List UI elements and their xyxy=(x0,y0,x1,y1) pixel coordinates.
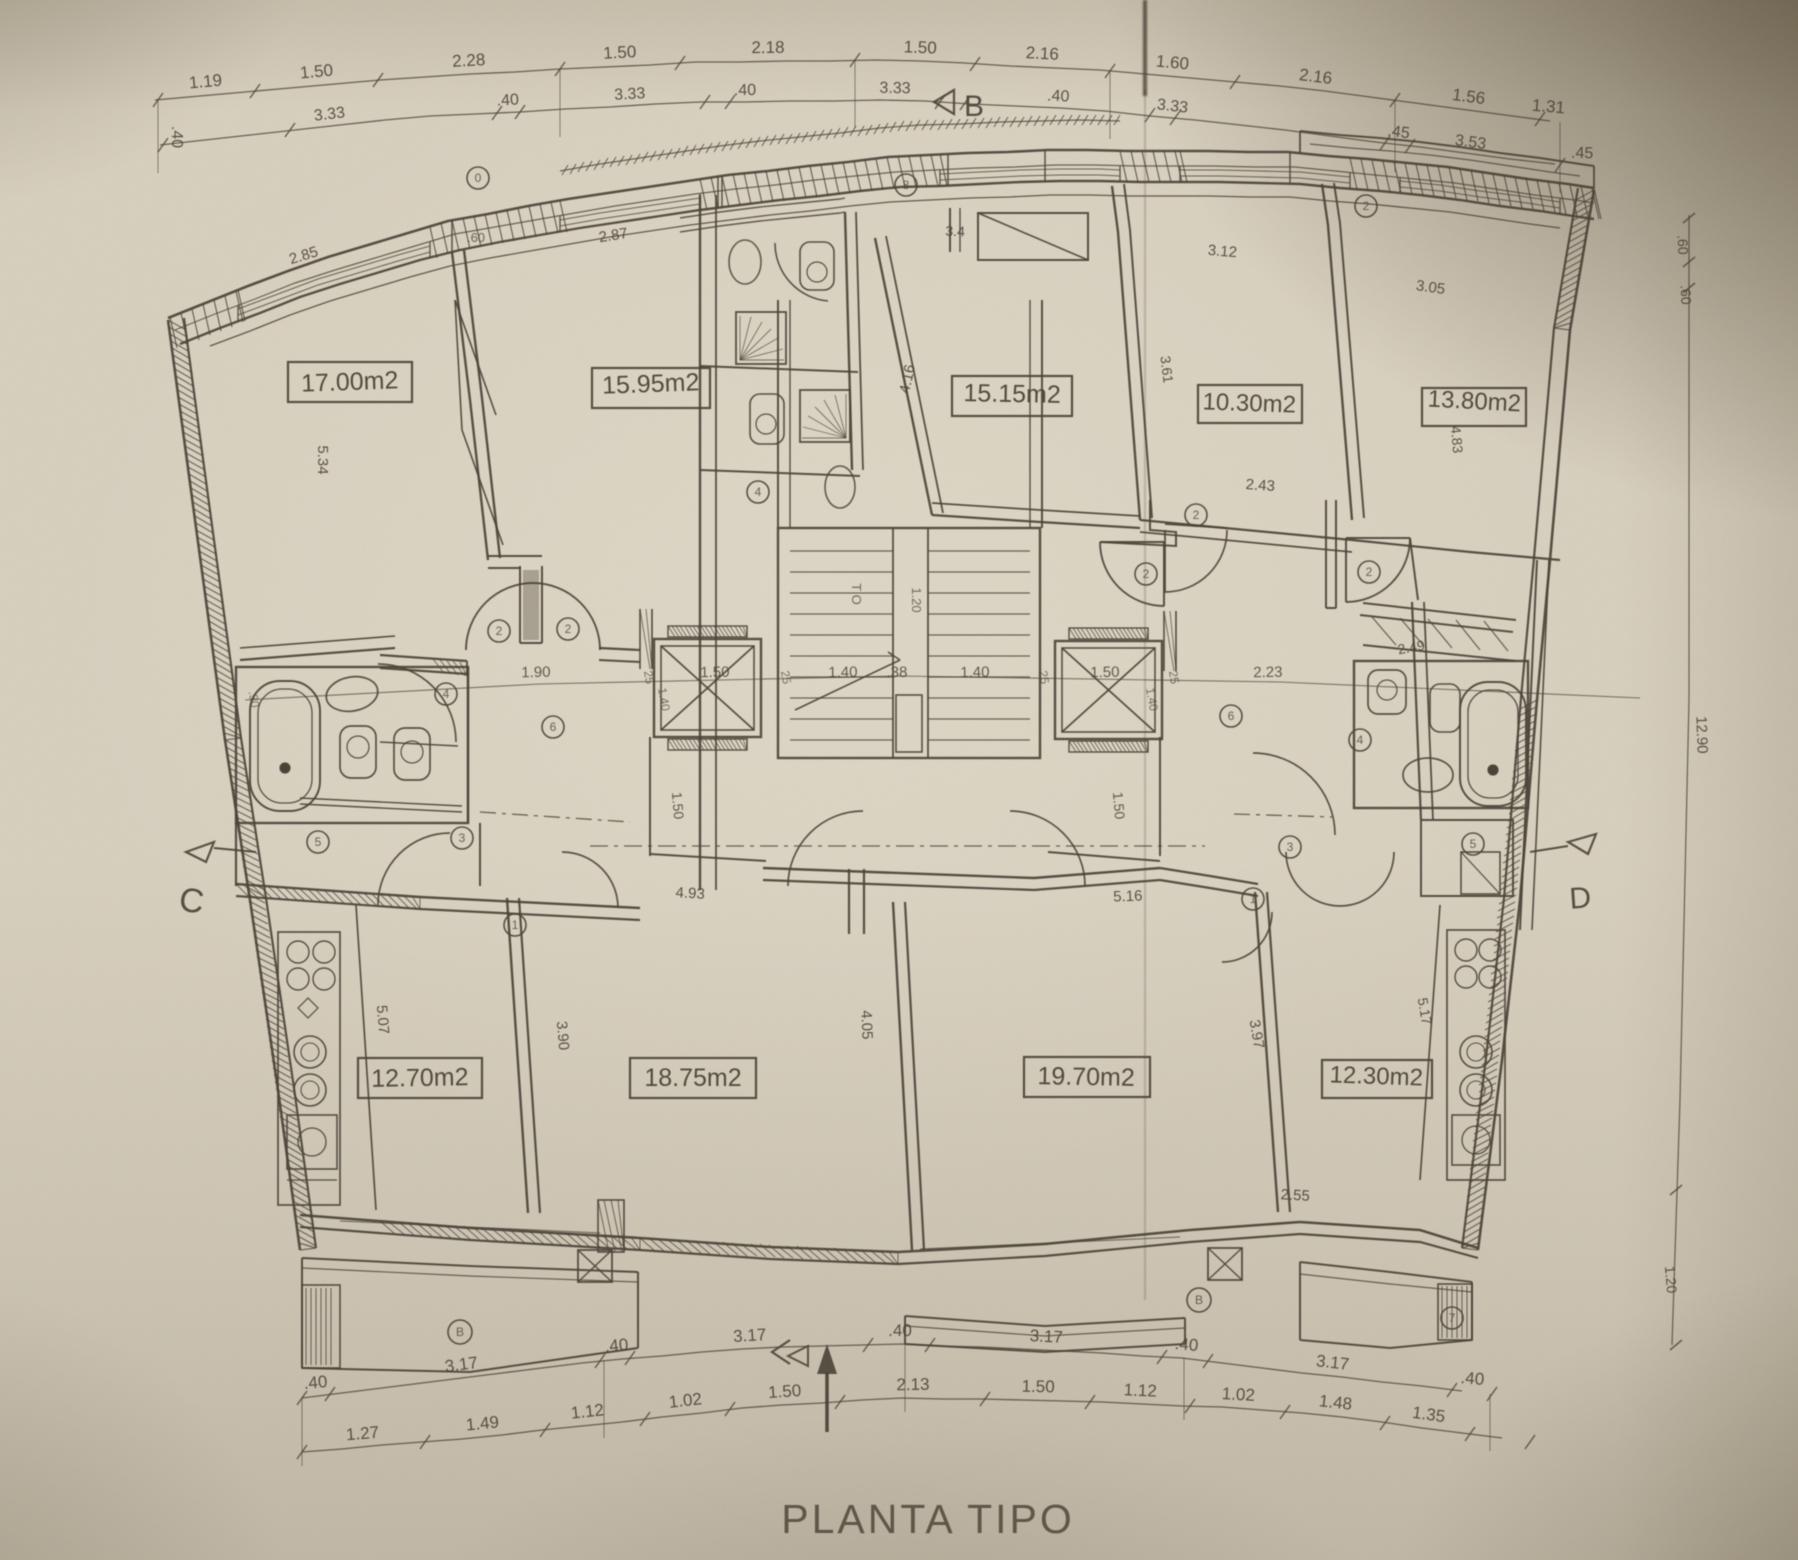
svg-text:12.30m2: 12.30m2 xyxy=(1329,1061,1423,1091)
svg-text:1.50: 1.50 xyxy=(1021,1377,1055,1397)
svg-text:.60: .60 xyxy=(1675,235,1692,255)
svg-text:2: 2 xyxy=(1193,508,1200,522)
svg-text:B: B xyxy=(1195,1293,1203,1307)
svg-text:8: 8 xyxy=(903,178,910,192)
svg-text:19.70m2: 19.70m2 xyxy=(1037,1062,1135,1092)
svg-text:6: 6 xyxy=(550,720,557,734)
svg-text:12.90: 12.90 xyxy=(1692,716,1710,754)
svg-text:.40: .40 xyxy=(1460,1368,1485,1389)
svg-text:5.34: 5.34 xyxy=(314,445,331,474)
svg-text:2.16: 2.16 xyxy=(1298,65,1333,88)
svg-text:1.48: 1.48 xyxy=(1318,1391,1353,1414)
svg-text:2.43: 2.43 xyxy=(1245,476,1275,495)
svg-text:.40: .40 xyxy=(1047,87,1070,105)
svg-text:3.33: 3.33 xyxy=(879,80,911,98)
svg-text:1: 1 xyxy=(1250,892,1257,906)
svg-text:.60: .60 xyxy=(467,230,485,245)
svg-text:6: 6 xyxy=(1228,709,1235,723)
svg-text:1.20: 1.20 xyxy=(909,587,924,612)
svg-text:25: 25 xyxy=(778,670,794,686)
svg-text:13.80m2: 13.80m2 xyxy=(1427,386,1522,418)
svg-text:4.83: 4.83 xyxy=(1448,425,1466,454)
svg-text:25: 25 xyxy=(1036,670,1052,686)
svg-text:.40: .40 xyxy=(1174,1334,1199,1355)
svg-text:2: 2 xyxy=(1143,567,1150,581)
svg-text:1.20: 1.20 xyxy=(1662,1265,1680,1294)
svg-text:.38: .38 xyxy=(886,664,907,681)
svg-text:B: B xyxy=(964,90,984,123)
svg-text:.40: .40 xyxy=(496,91,519,109)
svg-text:1.50: 1.50 xyxy=(903,37,937,57)
svg-text:2: 2 xyxy=(565,622,572,636)
svg-text:3.33: 3.33 xyxy=(1156,96,1189,116)
svg-text:5: 5 xyxy=(315,835,322,849)
svg-text:1.40: 1.40 xyxy=(828,664,857,682)
svg-text:1.90: 1.90 xyxy=(521,664,550,682)
svg-text:.40: .40 xyxy=(303,1372,328,1393)
svg-text:3.17: 3.17 xyxy=(1029,1326,1063,1347)
svg-text:0: 0 xyxy=(475,171,482,185)
svg-text:.40: .40 xyxy=(168,126,185,148)
svg-text:3: 3 xyxy=(459,831,466,845)
svg-text:1.31: 1.31 xyxy=(1531,96,1566,118)
svg-text:2.13: 2.13 xyxy=(896,1375,929,1394)
svg-text:.40: .40 xyxy=(734,82,757,99)
svg-text:3.33: 3.33 xyxy=(614,85,646,104)
svg-text:1: 1 xyxy=(512,918,519,932)
svg-text:3.12: 3.12 xyxy=(1207,242,1238,261)
svg-text:.40: .40 xyxy=(604,1335,629,1356)
svg-text:4: 4 xyxy=(1357,733,1364,747)
svg-text:1.02: 1.02 xyxy=(668,1389,703,1412)
svg-text:25: 25 xyxy=(1166,670,1182,686)
svg-text:1.40: 1.40 xyxy=(960,664,989,682)
svg-text:.40: .40 xyxy=(888,1321,912,1340)
svg-text:1.12: 1.12 xyxy=(1123,1380,1157,1400)
svg-text:1.60: 1.60 xyxy=(1155,52,1190,74)
svg-text:.45: .45 xyxy=(1571,145,1594,163)
svg-text:D: D xyxy=(1568,881,1592,915)
svg-text:3.17: 3.17 xyxy=(733,1325,767,1346)
svg-text:1.50: 1.50 xyxy=(603,42,637,63)
svg-text:B: B xyxy=(456,1325,464,1339)
svg-text:1.50: 1.50 xyxy=(669,791,687,820)
svg-text:15.15m2: 15.15m2 xyxy=(963,379,1061,409)
svg-text:4.93: 4.93 xyxy=(675,884,705,903)
svg-text:.30: .30 xyxy=(246,690,263,709)
svg-text:18.75m2: 18.75m2 xyxy=(644,1064,741,1092)
svg-text:1.12: 1.12 xyxy=(570,1400,605,1422)
svg-text:2.23: 2.23 xyxy=(1253,664,1282,682)
svg-text:2.28: 2.28 xyxy=(452,50,486,71)
svg-text:12.70m2: 12.70m2 xyxy=(371,1063,469,1093)
svg-text:3.4: 3.4 xyxy=(945,223,965,240)
svg-text:1.50: 1.50 xyxy=(1090,664,1119,682)
svg-text:1.02: 1.02 xyxy=(1221,1384,1255,1405)
svg-text:5: 5 xyxy=(1470,837,1477,851)
svg-text:4.05: 4.05 xyxy=(857,1010,875,1040)
svg-text:3.90: 3.90 xyxy=(553,1020,572,1051)
svg-text:2.55: 2.55 xyxy=(1280,1186,1310,1205)
svg-text:1.19: 1.19 xyxy=(188,71,223,93)
svg-text:5.07: 5.07 xyxy=(373,1004,392,1035)
svg-text:PLANTA TIPO: PLANTA TIPO xyxy=(781,1496,1075,1542)
svg-text:4: 4 xyxy=(755,485,762,499)
svg-text:2: 2 xyxy=(496,624,503,638)
svg-text:T O: T O xyxy=(849,583,864,604)
svg-text:15.95m2: 15.95m2 xyxy=(602,368,700,399)
svg-text:3.33: 3.33 xyxy=(313,104,346,124)
svg-text:3.61: 3.61 xyxy=(1157,355,1176,384)
svg-text:3: 3 xyxy=(1287,840,1294,854)
svg-text:C: C xyxy=(177,881,207,922)
svg-text:25: 25 xyxy=(641,670,657,686)
svg-text:5.16: 5.16 xyxy=(1113,887,1143,905)
svg-text:1.27: 1.27 xyxy=(345,1423,380,1445)
svg-text:10.30m2: 10.30m2 xyxy=(1202,388,1296,418)
svg-text:.60: .60 xyxy=(1678,285,1695,305)
svg-text:2: 2 xyxy=(1366,565,1373,579)
svg-text:7: 7 xyxy=(1449,1311,1456,1325)
svg-text:1.50: 1.50 xyxy=(700,664,729,682)
svg-text:2.16: 2.16 xyxy=(1025,43,1059,64)
svg-text:1.49: 1.49 xyxy=(465,1412,500,1434)
svg-text:2.18: 2.18 xyxy=(751,38,784,57)
svg-text:1.50: 1.50 xyxy=(299,61,334,83)
svg-text:1.50: 1.50 xyxy=(1110,791,1128,820)
svg-text:17.00m2: 17.00m2 xyxy=(301,366,399,397)
svg-text:1.50: 1.50 xyxy=(768,1381,802,1402)
svg-text:2: 2 xyxy=(1363,199,1370,213)
svg-text:3.17: 3.17 xyxy=(1315,1351,1350,1374)
